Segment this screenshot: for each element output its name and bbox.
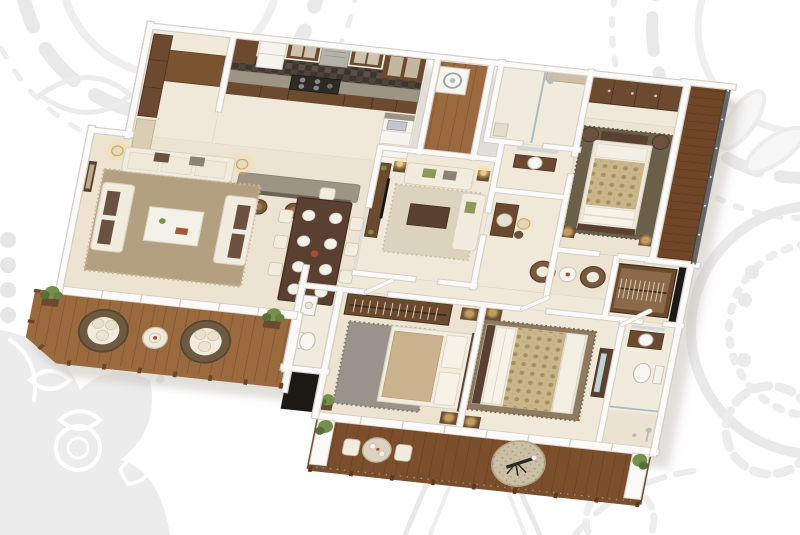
coffee-table — [143, 207, 204, 246]
refrigerator — [256, 40, 287, 70]
floorplan-scene — [0, 0, 800, 535]
floor-plan-render — [0, 0, 800, 535]
dining-chair — [273, 235, 289, 249]
dining-chair — [267, 262, 283, 276]
dining-chair — [338, 270, 354, 284]
bath-stool — [493, 123, 509, 137]
dining-chair — [344, 242, 360, 256]
dining-chair — [319, 187, 336, 200]
bed — [472, 325, 588, 414]
sink — [387, 120, 407, 131]
dining-chair — [349, 217, 365, 231]
balcony-chair — [342, 438, 361, 456]
dining-chair — [278, 209, 294, 223]
lounge-coffee-table — [407, 204, 450, 229]
balcony-chair — [394, 444, 413, 462]
washing-machine — [435, 66, 470, 95]
